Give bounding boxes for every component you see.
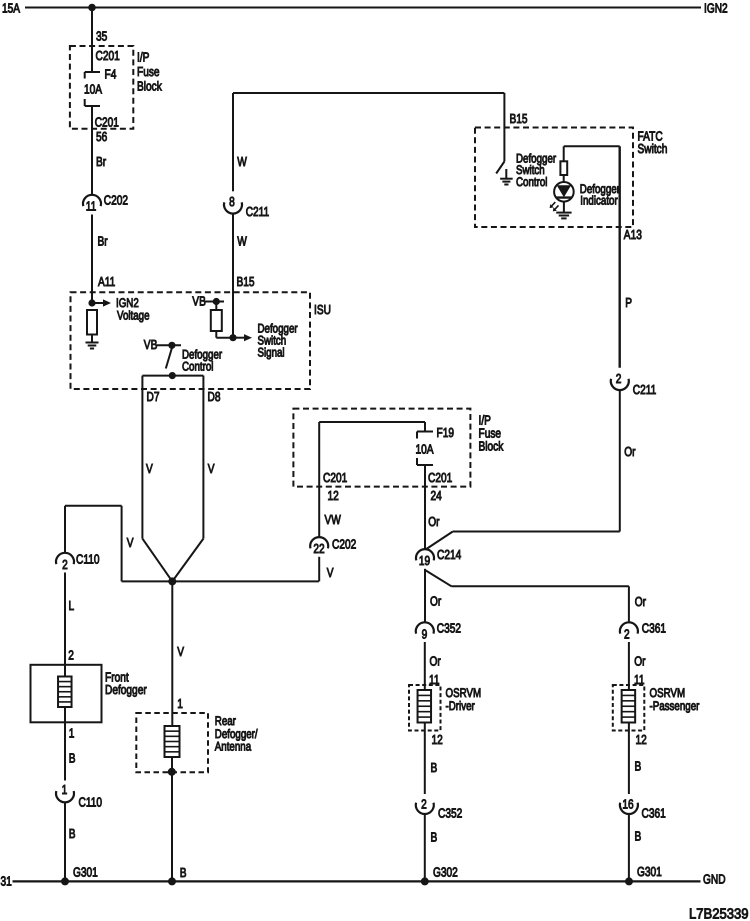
svg-text:2: 2 [624, 626, 630, 641]
svg-text:Switch: Switch [638, 141, 668, 156]
svg-text:C202: C202 [332, 537, 356, 552]
svg-text:35: 35 [96, 29, 107, 44]
svg-text:G302: G302 [433, 865, 458, 880]
svg-text:D7: D7 [147, 389, 160, 404]
svg-text:C201: C201 [428, 470, 452, 485]
svg-text:Or: Or [430, 654, 442, 669]
svg-text:10A: 10A [84, 82, 102, 97]
svg-text:C214: C214 [437, 547, 461, 562]
svg-text:C201: C201 [95, 115, 119, 130]
svg-text:B: B [635, 759, 642, 774]
svg-text:C202: C202 [104, 193, 128, 208]
svg-text:V: V [146, 461, 153, 476]
svg-text:1: 1 [177, 696, 183, 711]
svg-text:C110: C110 [76, 552, 99, 567]
svg-text:12: 12 [328, 488, 339, 503]
svg-text:Antenna: Antenna [215, 740, 251, 754]
svg-text:Br: Br [98, 234, 109, 249]
svg-text:56: 56 [96, 129, 107, 144]
svg-text:GND: GND [703, 872, 726, 887]
svg-text:12: 12 [636, 732, 647, 747]
svg-text:L: L [69, 598, 75, 613]
svg-text:V: V [327, 565, 334, 580]
svg-text:Block: Block [137, 79, 162, 94]
svg-text:Indicator: Indicator [580, 194, 617, 208]
svg-text:OSRVM: OSRVM [446, 686, 482, 700]
svg-text:W: W [237, 234, 247, 249]
svg-text:C211: C211 [246, 204, 269, 219]
svg-text:2: 2 [421, 797, 427, 812]
svg-text:2: 2 [616, 371, 622, 386]
svg-text:19: 19 [419, 553, 430, 568]
svg-text:G301: G301 [73, 865, 98, 880]
svg-text:C201: C201 [96, 48, 120, 63]
svg-text:C361: C361 [642, 621, 666, 636]
svg-text:Block: Block [479, 439, 504, 454]
svg-text:W: W [237, 154, 247, 169]
svg-text:8: 8 [229, 194, 235, 209]
svg-text:A13: A13 [624, 227, 642, 242]
svg-text:2: 2 [68, 648, 74, 663]
svg-text:10A: 10A [416, 442, 434, 457]
svg-text:F19: F19 [437, 425, 454, 440]
svg-text:ISU: ISU [314, 302, 331, 317]
svg-text:B: B [69, 826, 76, 841]
svg-text:Signal: Signal [258, 346, 285, 360]
svg-text:P: P [625, 295, 632, 310]
svg-text:24: 24 [431, 488, 442, 503]
svg-text:C352: C352 [438, 806, 462, 821]
svg-text:Or: Or [624, 444, 636, 459]
svg-text:G301: G301 [637, 864, 662, 879]
svg-text:I/P: I/P [137, 50, 149, 65]
svg-text:Br: Br [96, 154, 107, 169]
svg-text:Control: Control [516, 175, 547, 189]
svg-text:Defogger: Defogger [105, 682, 147, 697]
svg-text:C110: C110 [79, 795, 102, 810]
svg-text:15A: 15A [2, 1, 20, 16]
svg-text:B: B [635, 829, 642, 844]
svg-text:C361: C361 [642, 806, 666, 821]
svg-text:C201: C201 [323, 470, 347, 485]
svg-text:B15: B15 [237, 274, 255, 289]
svg-text:B: B [69, 751, 76, 766]
svg-text:31: 31 [1, 874, 12, 889]
svg-text:VW: VW [325, 512, 342, 527]
svg-text:Or: Or [428, 514, 440, 529]
svg-text:V: V [177, 644, 184, 659]
svg-text:D8: D8 [208, 389, 221, 404]
svg-text:Or: Or [635, 594, 647, 609]
svg-text:C352: C352 [437, 621, 461, 636]
svg-text:22: 22 [313, 541, 324, 556]
svg-text:IGN2: IGN2 [704, 1, 728, 16]
svg-text:B: B [431, 830, 438, 845]
svg-text:VB: VB [192, 294, 206, 309]
svg-text:B: B [180, 865, 187, 880]
svg-text:Or: Or [430, 594, 442, 609]
svg-text:Control: Control [182, 359, 213, 373]
svg-text:V: V [127, 535, 134, 550]
svg-text:1: 1 [69, 726, 75, 741]
svg-text:V: V [208, 461, 215, 476]
svg-text:VB: VB [144, 337, 158, 352]
svg-text:F4: F4 [105, 67, 117, 82]
svg-text:B: B [431, 760, 438, 775]
svg-text:OSRVM: OSRVM [650, 686, 686, 700]
svg-text:C211: C211 [633, 382, 656, 397]
svg-text:Or: Or [634, 654, 646, 669]
svg-text:A11: A11 [98, 274, 115, 289]
svg-text:9: 9 [422, 626, 428, 641]
svg-text:16: 16 [622, 797, 633, 812]
svg-text:11: 11 [86, 199, 97, 214]
svg-text:-Passenger: -Passenger [650, 699, 700, 713]
svg-text:-Driver: -Driver [446, 699, 475, 713]
svg-text:12: 12 [432, 732, 443, 747]
svg-text:1: 1 [62, 782, 68, 797]
svg-text:B15: B15 [510, 111, 528, 126]
svg-text:2: 2 [62, 557, 68, 572]
svg-text:L7B25339: L7B25339 [689, 907, 749, 921]
svg-text:Fuse: Fuse [137, 64, 160, 79]
svg-text:Voltage: Voltage [117, 309, 150, 323]
